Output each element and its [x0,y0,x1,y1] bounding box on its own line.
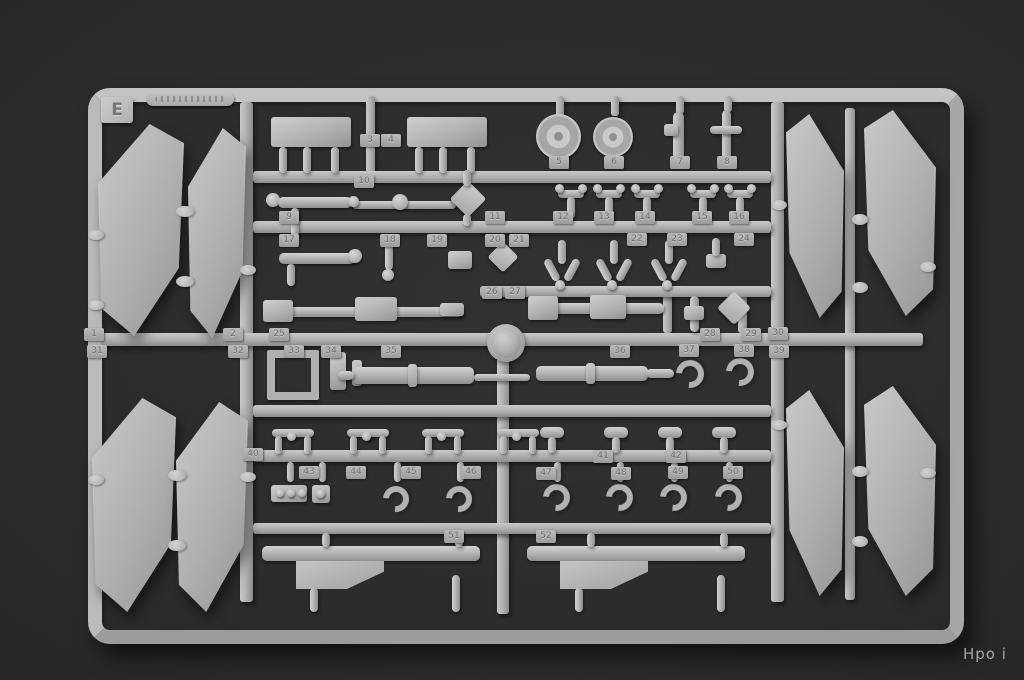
molded-part [536,114,581,159]
molded-part [176,276,194,287]
molded-part [348,249,362,263]
part-number-tag-29: 29 [741,328,761,341]
part-number-tag-2: 2 [223,328,243,341]
watermark-text: Hpo i [963,645,1007,663]
sprue-runner [845,108,855,600]
side-skirt-panel [188,128,246,338]
side-skirt-panel [786,390,844,596]
part-number-tag-22: 22 [627,233,647,246]
molded-part [528,296,558,320]
molded-part [316,489,325,498]
molded-part [287,462,294,482]
part-number-tag-45: 45 [401,466,421,479]
part-number-tag-34: 34 [321,345,341,358]
molded-part [720,437,728,453]
part-number-tag-12: 12 [553,211,573,224]
photo-scene: E 12345678910111213141516171819202122232… [0,0,1024,680]
molded-part [303,147,311,173]
molded-part [425,436,432,454]
side-skirt-panel-face [786,114,844,318]
molded-part [263,300,293,322]
part-number-tag-48: 48 [611,467,631,480]
molded-part [654,184,663,193]
molded-part [722,110,731,160]
part-number-tag-52: 52 [536,530,556,543]
molded-part [168,540,186,551]
molded-part [555,280,565,290]
molded-part [279,147,287,173]
molded-part [176,206,194,217]
side-skirt-panel-face [786,390,844,596]
part-number-tag-17: 17 [279,234,299,247]
part-number-tag-35: 35 [381,345,401,358]
side-skirt-panel [864,386,936,596]
molded-part [168,470,186,481]
part-number-tag-49: 49 [668,466,688,479]
molded-part [240,265,256,275]
molded-part [287,264,295,286]
molded-part [392,194,408,210]
part-number-tag-24: 24 [734,233,754,246]
molded-part [287,489,295,497]
molded-part [338,371,354,380]
molded-part [687,184,696,193]
molded-part [437,432,446,441]
part-number-tag-1: 1 [84,328,104,341]
molded-part [852,536,868,547]
part-number-tag-32: 32 [228,345,248,358]
molded-part [555,184,564,193]
molded-part [382,269,394,281]
molded-part [467,147,475,173]
part-number-tag-10: 10 [354,175,374,188]
molded-part [616,184,625,193]
part-number-tag-51: 51 [444,530,464,543]
part-number-tag-42: 42 [666,450,686,463]
molded-part [310,588,318,612]
molded-part [558,240,566,264]
molded-part [379,436,386,454]
part-number-tag-26: 26 [482,286,502,299]
molded-part [474,374,530,381]
molded-part [319,462,326,482]
molded-part [710,126,742,134]
molded-part [271,117,351,147]
side-skirt-panel-face [98,124,184,336]
molded-part [529,436,536,454]
side-skirt-panel [92,398,176,612]
molded-part [88,300,104,310]
sprue-letter-tab: E [101,97,133,123]
part-number-tag-33: 33 [284,345,304,358]
part-number-tag-31: 31 [87,345,107,358]
part-number-tag-40: 40 [243,448,263,461]
molded-part [586,363,595,384]
part-number-tag-44: 44 [346,466,366,479]
molded-part [463,214,471,226]
part-number-tag-11: 11 [485,211,505,224]
part-number-tag-27: 27 [505,286,525,299]
part-number-tag-47: 47 [536,467,556,480]
molded-part [500,436,507,454]
molded-part [852,282,868,293]
molded-part [710,184,719,193]
molded-part [852,214,868,225]
molded-part [279,253,355,264]
molded-part [706,254,726,268]
molded-part [452,575,460,612]
side-skirt-panel-face [92,398,176,612]
part-number-tag-37: 37 [679,344,699,357]
part-number-tag-25: 25 [269,328,289,341]
molded-part [593,117,633,157]
molded-part [355,297,397,321]
molded-part [408,364,417,387]
part-number-tag-36: 36 [610,345,630,358]
molded-part [684,306,704,320]
part-number-tag-7: 7 [670,156,690,169]
sprue-runner [253,171,771,183]
molded-part [920,468,936,478]
part-number-tag-46: 46 [461,466,481,479]
molded-part [548,437,556,453]
part-number-tag-9: 9 [279,211,299,224]
molded-part [350,436,357,454]
part-number-tag-3: 3 [360,134,380,147]
molded-part [717,575,725,612]
molded-part [747,184,756,193]
molded-part [275,436,282,454]
molded-part [262,546,480,561]
molded-part [612,437,620,453]
side-skirt-panel [176,402,248,612]
part-number-tag-30: 30 [768,327,788,340]
molded-part [646,369,674,378]
part-number-tag-13: 13 [594,211,614,224]
molded-part [88,230,104,240]
part-number-tag-14: 14 [635,211,655,224]
molded-part [920,262,936,272]
molded-part [415,147,423,173]
side-skirt-panel [786,114,844,318]
part-number-tag-16: 16 [729,211,749,224]
part-number-tag-50: 50 [723,466,743,479]
part-number-tag-28: 28 [700,328,720,341]
molded-part [771,420,787,430]
sprue-runner [253,523,771,534]
molded-part [304,436,311,454]
sprue-runner [611,96,619,116]
molded-part [240,472,256,482]
molded-part [607,280,617,290]
molded-part [487,324,525,362]
side-skirt-panel-face [176,402,248,612]
molded-part [664,124,678,136]
mold-code-tab [146,92,234,106]
part-number-tag-18: 18 [380,234,400,247]
side-skirt-panel-face [188,128,246,338]
molded-part [440,303,464,316]
molded-part [512,432,521,441]
molded-part [631,184,640,193]
molded-part [587,533,595,547]
side-skirt-panel-face [864,386,936,596]
molded-part [454,436,461,454]
part-number-tag-41: 41 [593,450,613,463]
molded-part [575,588,583,612]
molded-part [439,147,447,173]
part-number-tag-19: 19 [427,234,447,247]
part-number-tag-23: 23 [667,233,687,246]
molded-part [593,184,602,193]
part-number-tag-21: 21 [509,234,529,247]
molded-part [610,240,618,264]
molded-part [724,184,733,193]
part-number-tag-38: 38 [734,344,754,357]
part-number-tag-15: 15 [692,211,712,224]
molded-part [720,533,728,547]
molded-part [673,112,684,160]
part-number-tag-43: 43 [299,466,319,479]
molded-part [276,489,284,497]
sprue-runner [253,405,771,417]
part-number-tag-5: 5 [549,156,569,169]
molded-part [394,462,401,482]
part-number-tag-20: 20 [485,234,505,247]
side-skirt-panel [864,110,936,316]
molded-part [348,196,359,207]
molded-part [771,200,787,210]
molded-part [712,238,720,256]
molded-part [448,251,472,269]
molded-part [852,466,868,477]
molded-part [298,489,306,497]
molded-part [322,533,330,547]
molded-part [463,170,471,186]
side-skirt-panel [98,124,184,336]
sprue-runner [253,450,771,462]
molded-part [278,197,352,208]
molded-part [527,546,745,561]
molded-part [662,280,672,290]
part-number-tag-39: 39 [769,345,789,358]
molded-part [287,432,296,441]
part-number-tag-8: 8 [717,156,737,169]
molded-part [407,117,487,147]
part-number-tag-6: 6 [604,156,624,169]
molded-part [578,184,587,193]
molded-part [88,475,104,485]
part-number-tag-4: 4 [381,134,401,147]
molded-part [590,295,626,319]
side-skirt-panel-face [864,110,936,316]
molded-part [362,432,371,441]
molded-part [331,147,339,173]
